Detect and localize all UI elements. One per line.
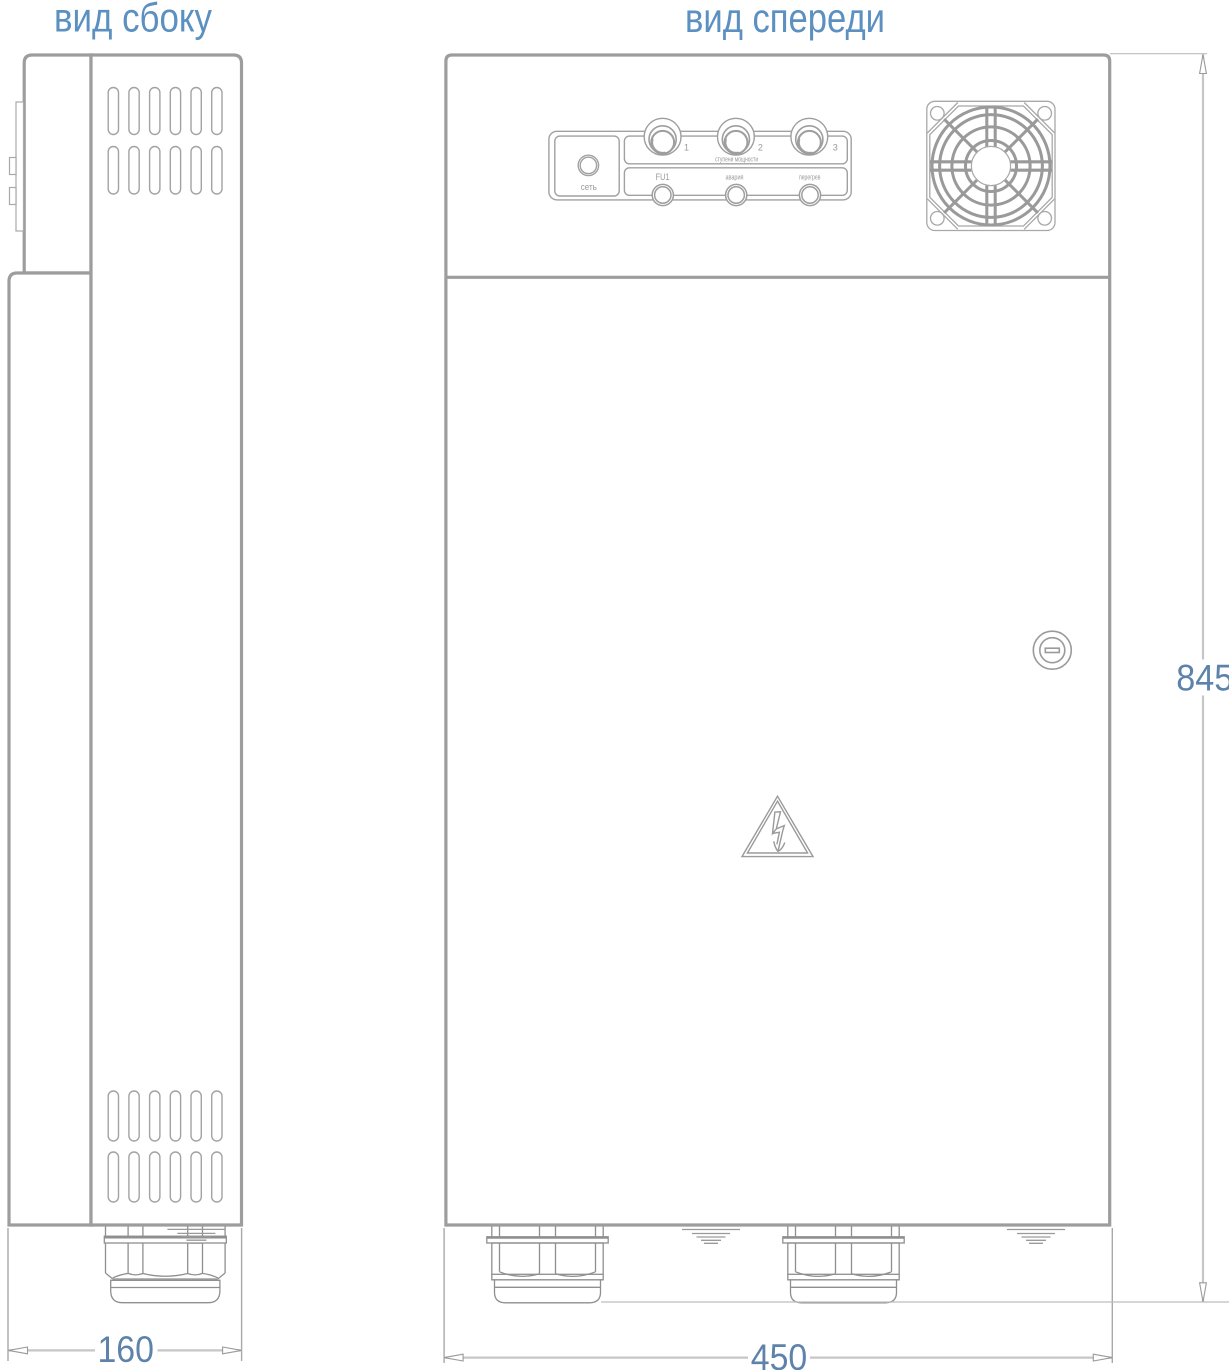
svg-text:сеть: сеть [581, 182, 597, 193]
svg-text:2: 2 [758, 143, 763, 153]
svg-text:1: 1 [684, 143, 689, 153]
svg-text:FU1: FU1 [656, 172, 670, 183]
svg-text:ступени мощности: ступени мощности [715, 156, 758, 163]
svg-text:3: 3 [833, 143, 838, 153]
svg-text:авария: авария [726, 175, 744, 182]
svg-text:вид сбоку: вид сбоку [54, 0, 212, 41]
svg-text:845: 845 [1176, 657, 1229, 699]
svg-text:450: 450 [751, 1336, 808, 1370]
svg-text:перегрев: перегрев [799, 175, 821, 182]
svg-text:вид спереди: вид спереди [685, 0, 885, 41]
svg-text:160: 160 [97, 1328, 154, 1370]
